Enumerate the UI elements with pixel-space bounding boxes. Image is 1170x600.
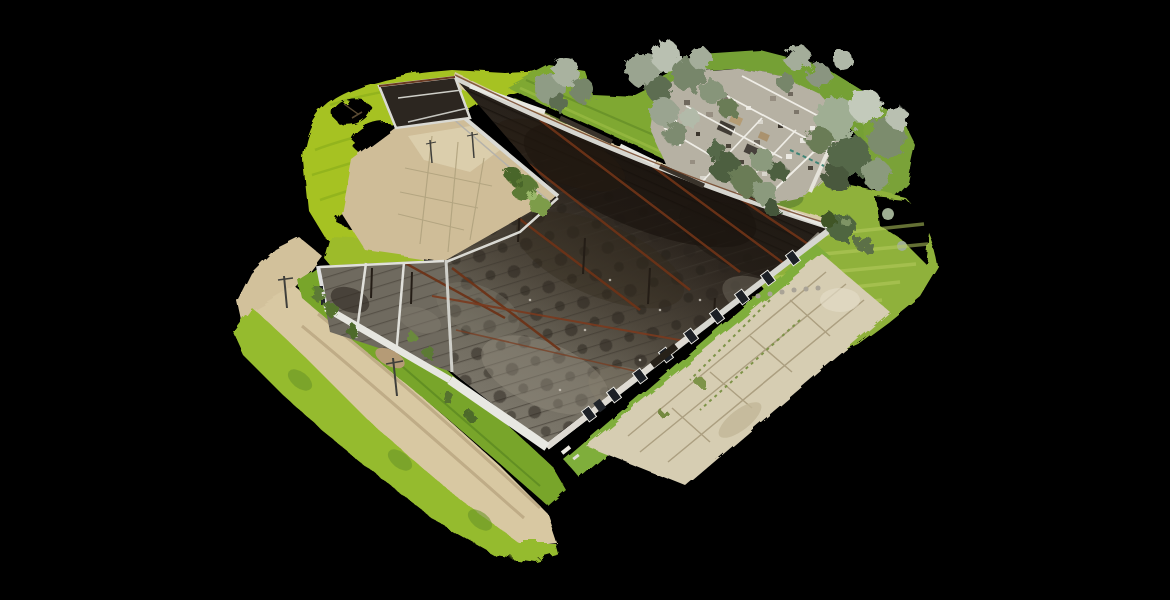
3d-model-viewport[interactable] bbox=[0, 0, 1170, 600]
west-annex bbox=[379, 77, 470, 128]
apron-bright-patch bbox=[820, 288, 860, 312]
stray-foliage bbox=[882, 208, 894, 220]
photogrammetry-model-canvas bbox=[0, 0, 1170, 600]
